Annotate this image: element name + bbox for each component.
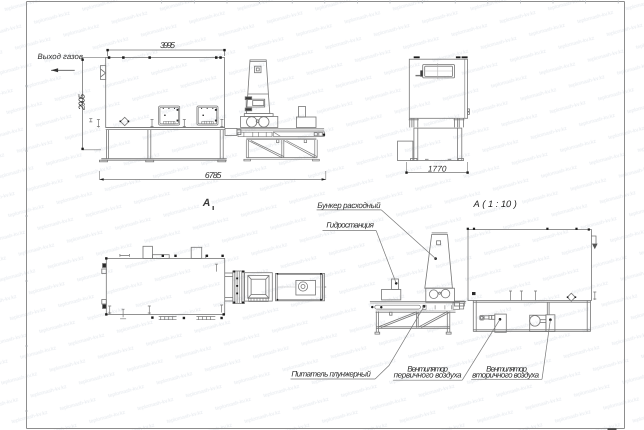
svg-text:6785: 6785 <box>205 170 222 180</box>
svg-text:А: А <box>202 197 211 209</box>
svg-text:первичного воздуха: первичного воздуха <box>394 371 463 380</box>
svg-text:Выход газов: Выход газов <box>38 52 83 61</box>
svg-text:3995: 3995 <box>160 40 175 50</box>
svg-text:2905: 2905 <box>77 94 87 111</box>
svg-text:Бункер расходный: Бункер расходный <box>317 201 381 210</box>
svg-text:Гидростанция: Гидростанция <box>326 221 374 230</box>
svg-text:А ( 1 : 10 ): А ( 1 : 10 ) <box>473 199 517 209</box>
svg-text:вторичного воздуха: вторичного воздуха <box>472 371 540 380</box>
svg-text:Питатель плунжерный: Питатель плунжерный <box>291 369 371 378</box>
svg-text:1770: 1770 <box>428 164 447 173</box>
